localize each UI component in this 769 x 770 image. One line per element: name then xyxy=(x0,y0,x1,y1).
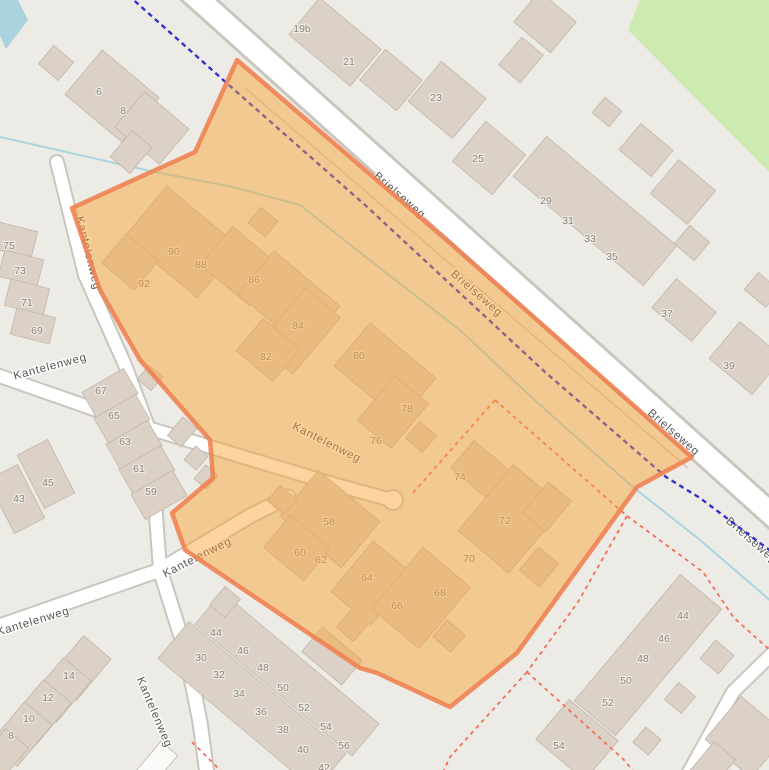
house-number: 12 xyxy=(42,692,54,704)
house-number: 63 xyxy=(119,436,131,448)
house-number: 46 xyxy=(658,633,670,645)
house-number: 50 xyxy=(620,675,632,687)
house-number: 48 xyxy=(637,653,649,665)
house-number: 52 xyxy=(298,702,310,714)
house-number: 43 xyxy=(13,493,25,505)
house-number: 37 xyxy=(661,308,673,320)
house-number: 14 xyxy=(63,670,75,682)
house-number: 19b xyxy=(293,23,311,35)
house-number: 48 xyxy=(257,662,269,674)
house-number: 38 xyxy=(277,724,289,736)
house-number: 44 xyxy=(677,610,689,622)
house-number: 32 xyxy=(213,669,225,681)
house-number: 34 xyxy=(233,688,245,700)
house-number: 75 xyxy=(3,240,15,252)
house-number: 59 xyxy=(145,486,157,498)
house-number: 45 xyxy=(42,477,54,489)
house-number: 54 xyxy=(553,740,565,752)
house-number: 71 xyxy=(21,297,33,309)
house-number: 6 xyxy=(96,86,102,98)
house-number: 31 xyxy=(562,215,574,227)
house-number: 46 xyxy=(237,645,249,657)
house-number: 54 xyxy=(320,721,332,733)
house-number: 35 xyxy=(606,251,618,263)
house-number: 33 xyxy=(584,233,596,245)
house-number: 8 xyxy=(8,730,14,742)
house-number: 36 xyxy=(255,706,267,718)
map-canvas[interactable]: 6819b21232529313335373975737169676563615… xyxy=(0,0,769,770)
house-number: 73 xyxy=(14,265,26,277)
house-number: 65 xyxy=(108,410,120,422)
house-number: 10 xyxy=(23,713,35,725)
house-number: 21 xyxy=(343,56,355,68)
house-number: 40 xyxy=(297,744,309,756)
house-number: 56 xyxy=(338,740,350,752)
house-number: 8 xyxy=(120,105,126,117)
house-number: 67 xyxy=(95,385,107,397)
house-number: 61 xyxy=(133,463,145,475)
house-number: 50 xyxy=(277,682,289,694)
house-number: 52 xyxy=(602,697,614,709)
house-number: 69 xyxy=(31,325,43,337)
house-number: 23 xyxy=(430,92,442,104)
house-number: 25 xyxy=(472,153,484,165)
house-number: 30 xyxy=(195,652,207,664)
house-number: 44 xyxy=(210,627,222,639)
house-number: 42 xyxy=(318,762,330,770)
house-number: 39 xyxy=(723,360,735,372)
house-number: 29 xyxy=(540,195,552,207)
